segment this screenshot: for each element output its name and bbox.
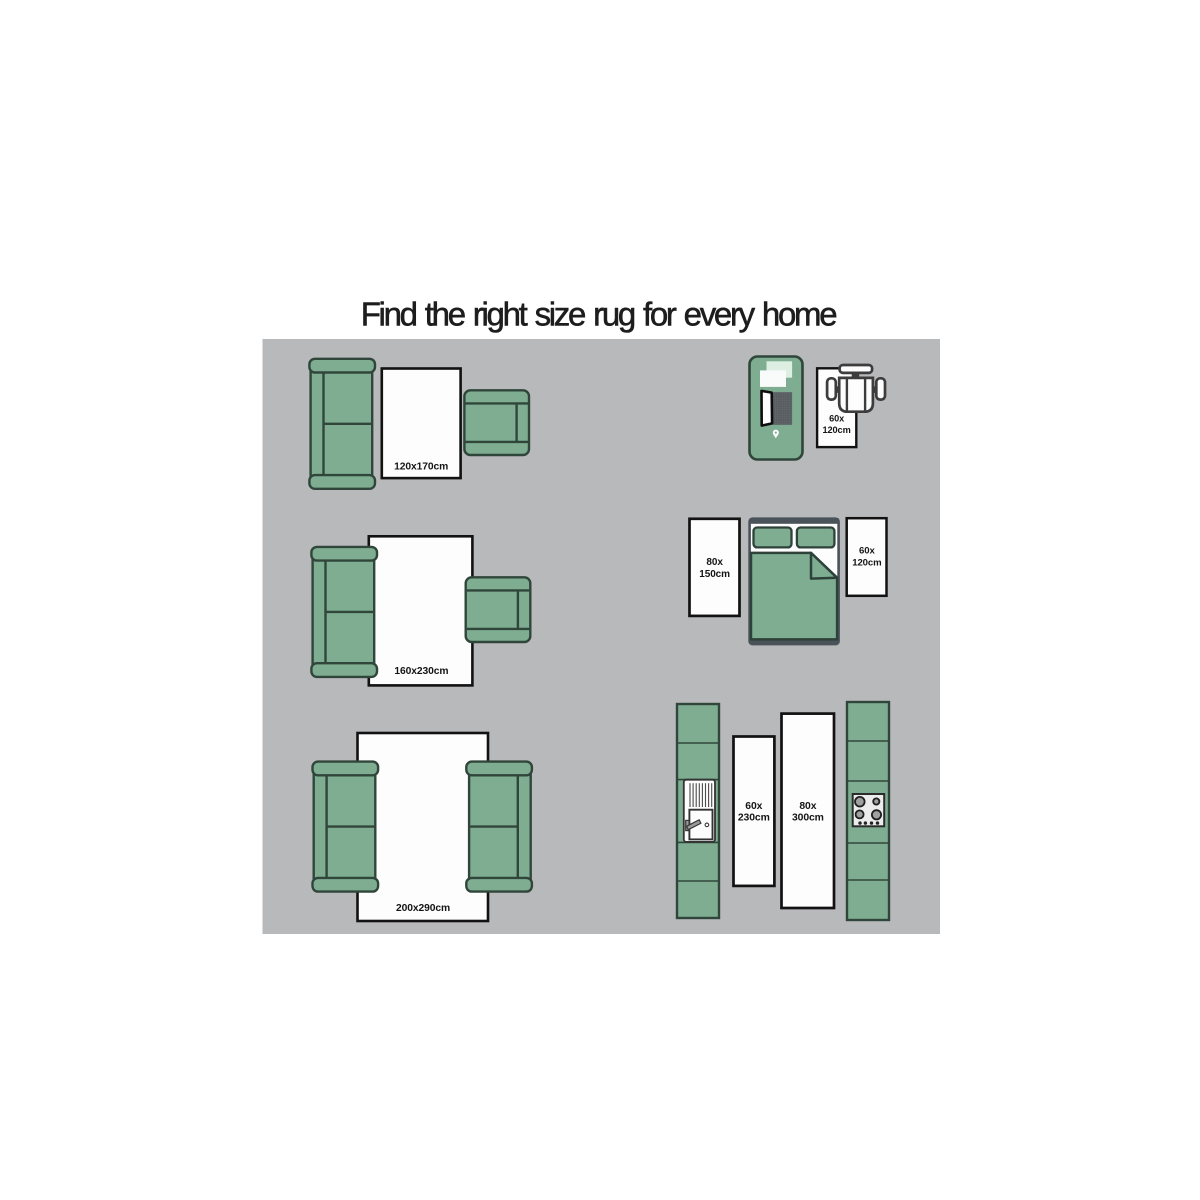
svg-text:300cm: 300cm [792,812,824,823]
svg-text:120x170cm: 120x170cm [394,461,448,472]
svg-text:80x: 80x [799,801,816,812]
svg-text:200x290cm: 200x290cm [396,903,450,914]
svg-text:230cm: 230cm [738,812,770,823]
svg-text:150cm: 150cm [699,569,730,580]
svg-text:Find the right size rug for ev: Find the right size rug for every home [361,296,837,333]
svg-text:160x230cm: 160x230cm [394,666,448,677]
svg-text:60x: 60x [745,801,762,812]
svg-text:60x: 60x [829,414,845,424]
svg-text:80x: 80x [706,557,723,568]
svg-text:120cm: 120cm [852,558,881,569]
svg-text:60x: 60x [859,546,875,557]
svg-text:120cm: 120cm [823,425,851,435]
